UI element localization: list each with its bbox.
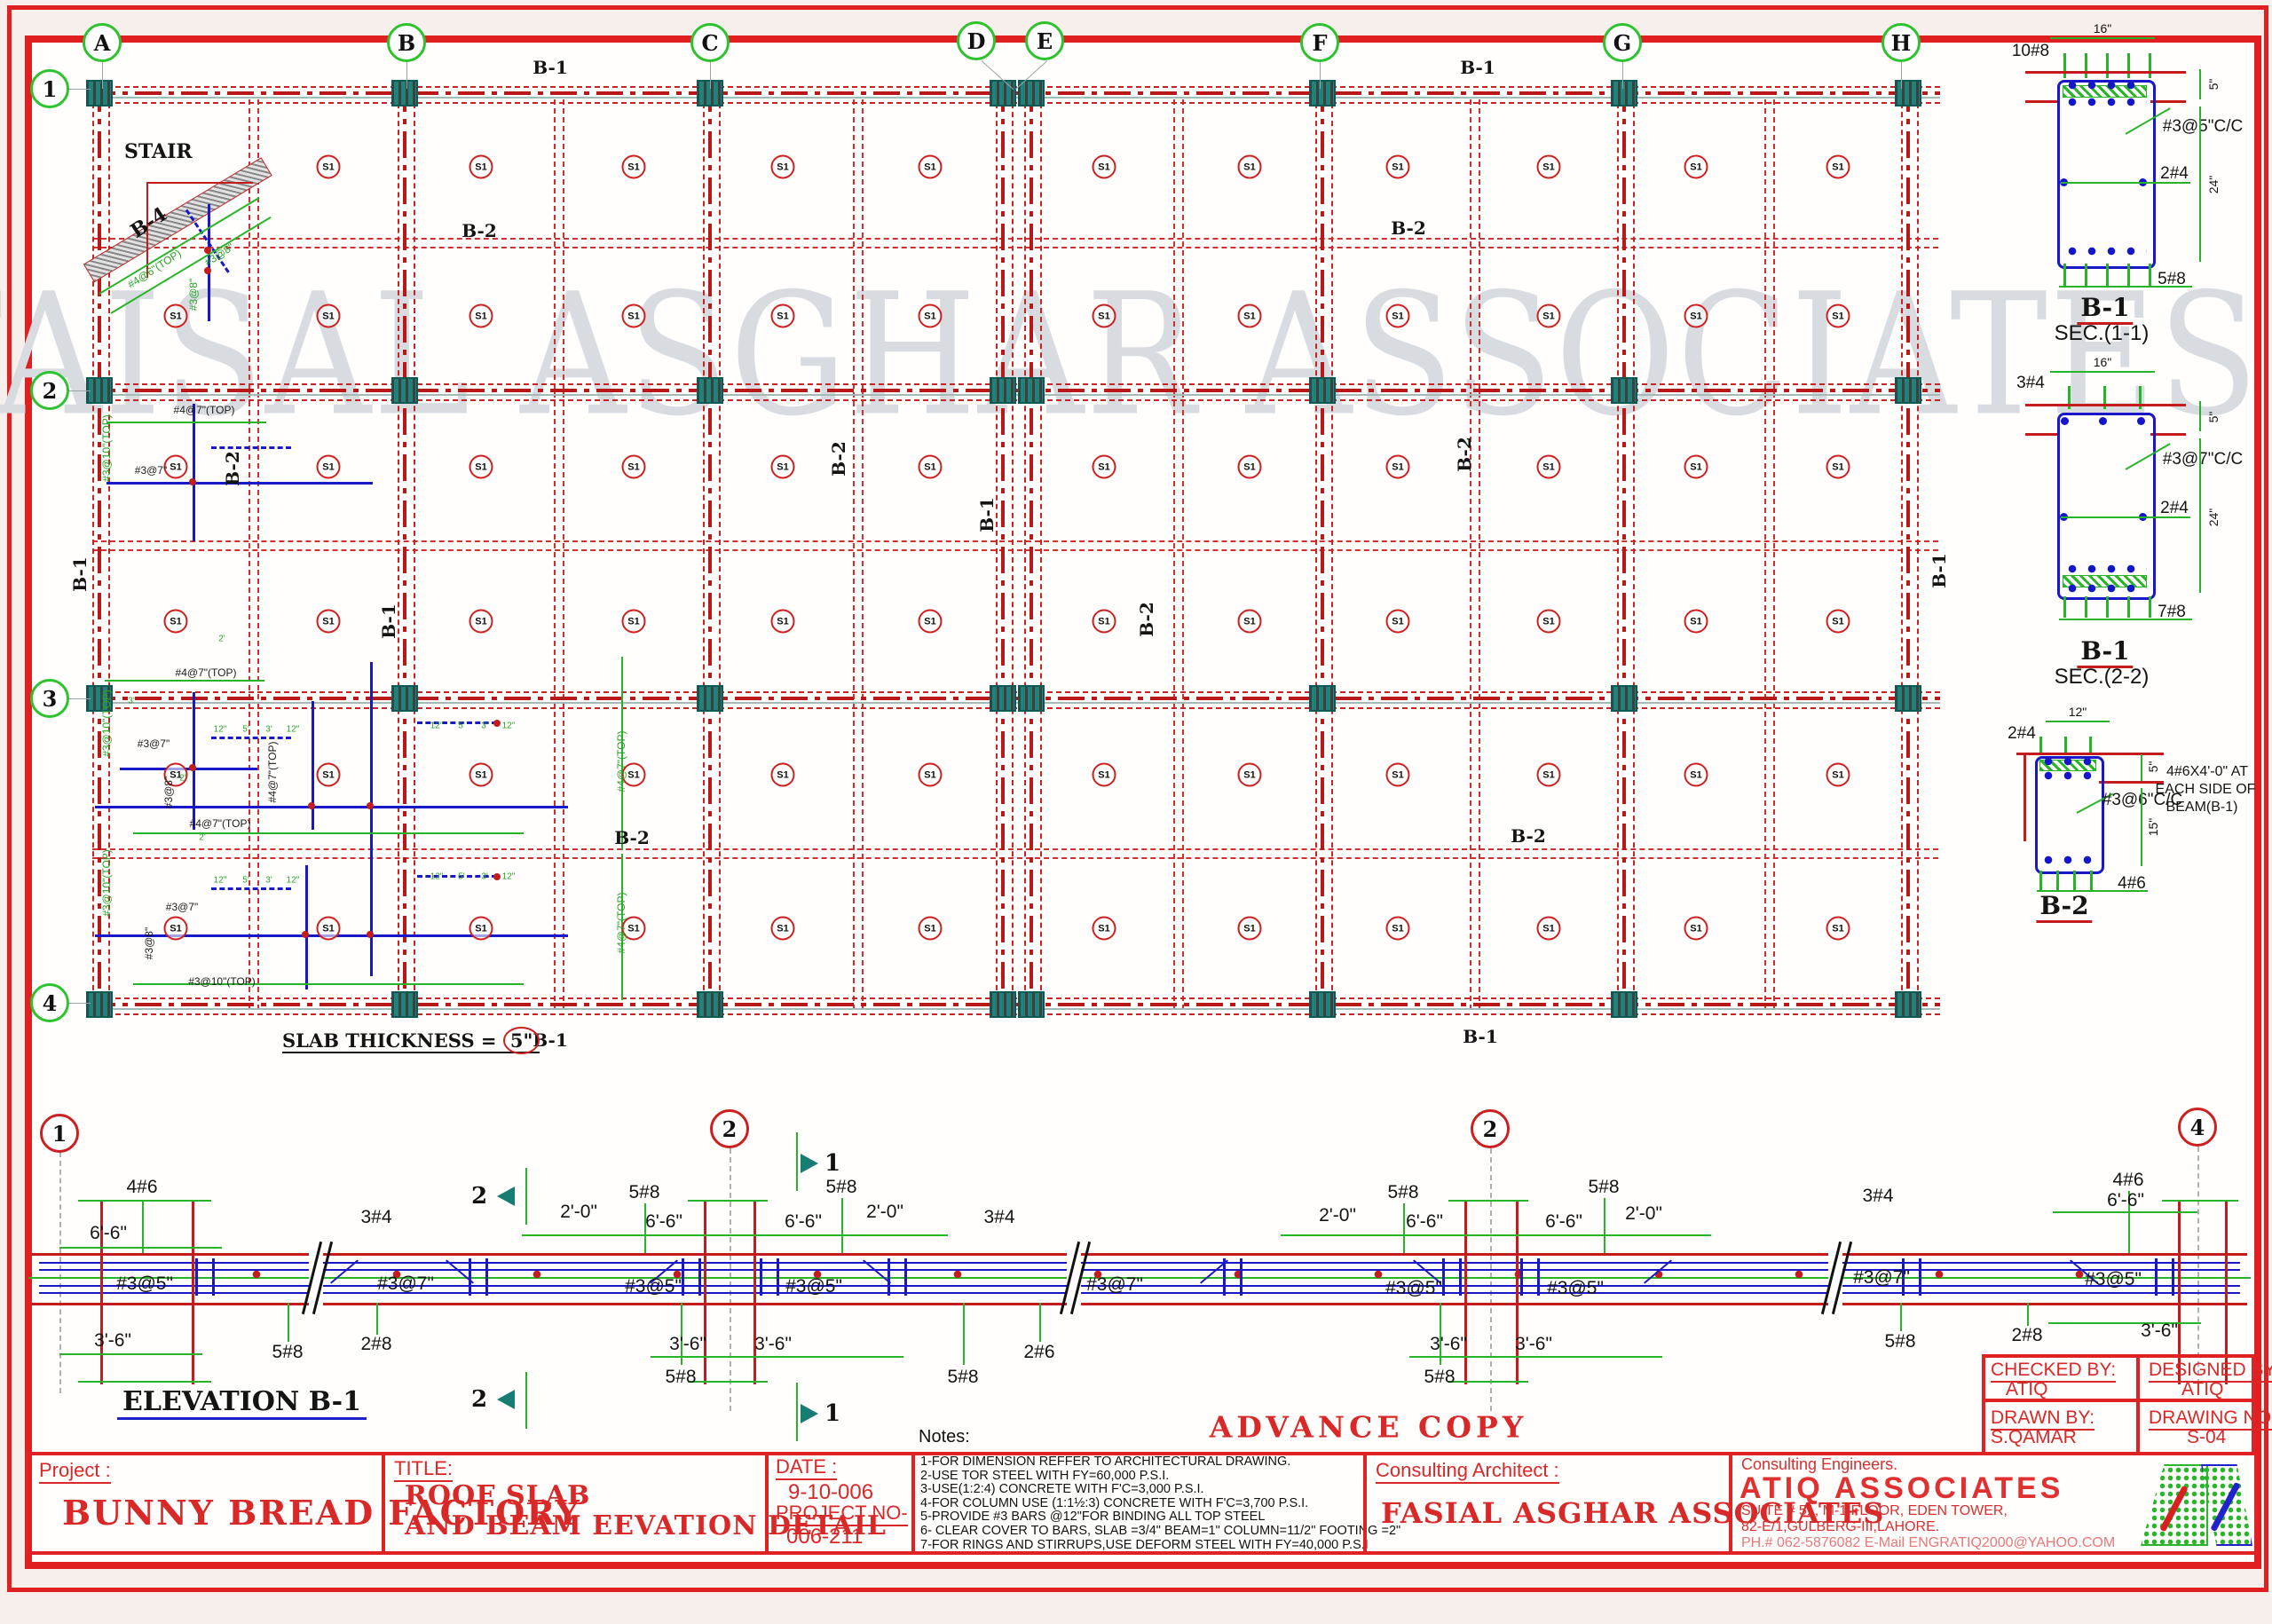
rebar-callout: #3@10"(TOP) <box>100 414 113 482</box>
slab-line <box>2150 433 2186 436</box>
project-no-value: 006-211 <box>786 1525 863 1549</box>
grid-column-bubble: B <box>387 23 426 62</box>
rebar-line <box>305 865 308 989</box>
slab-line <box>2023 753 2026 841</box>
leader-line <box>142 1200 144 1253</box>
slab-panel-label: S1 <box>170 311 181 321</box>
slab-panel-marker: S1 <box>317 917 341 941</box>
slab-panel-marker: S1 <box>919 155 943 179</box>
slab-panel-marker: S1 <box>317 155 341 179</box>
section-cut-line <box>525 1372 527 1429</box>
slab-line <box>2025 71 2186 74</box>
note-line: 7-FOR RINGS AND STIRRUPS,USE DEFORM STEE… <box>920 1539 1400 1553</box>
project-label: Project : <box>39 1459 111 1484</box>
elevation-callout: 3'-6" <box>2141 1320 2178 1342</box>
slab-panel-label: S1 <box>1392 923 1403 934</box>
slab-panel-label: S1 <box>1098 616 1109 627</box>
title-label: TITLE: <box>394 1457 453 1482</box>
slab-panel-marker: S1 <box>469 304 493 328</box>
dim-line <box>59 1353 202 1355</box>
slab-strip <box>1470 99 1480 1010</box>
slab-panel-label: S1 <box>924 311 935 321</box>
bar-point <box>367 802 374 809</box>
slab-line <box>2025 433 2057 436</box>
slab-panel-marker: S1 <box>1386 917 1410 941</box>
column <box>1895 377 1921 404</box>
slab-panel-label: S1 <box>777 923 788 934</box>
slab-panel-label: S1 <box>1243 162 1255 172</box>
column <box>1018 991 1045 1018</box>
column <box>990 377 1016 404</box>
grid-leader <box>66 390 91 391</box>
rebar-line <box>370 662 373 976</box>
dim-text: 12" <box>502 872 516 882</box>
slab-panel-marker: S1 <box>1826 917 1850 941</box>
slab-strip <box>92 238 1938 248</box>
dim-text: 12" <box>214 725 227 735</box>
slab-strip <box>554 99 564 1010</box>
dim-text: 3' <box>265 725 272 735</box>
drawing-sheet: FAISAL ASGHAR ASSOCIATES ABCDEFGH 1234 S… <box>0 0 2272 1624</box>
slab-panel-marker: S1 <box>469 763 493 787</box>
rebar-dots <box>2039 771 2095 780</box>
elevation-callout: #3@5" <box>625 1276 682 1297</box>
slab-panel-marker: S1 <box>622 155 646 179</box>
slab-thickness-text: SLAB THICKNESS = <box>282 1029 497 1052</box>
dim-line <box>105 680 264 682</box>
beam-col-H <box>1901 85 1919 1017</box>
slab-strip <box>248 99 259 1010</box>
dim-line <box>2141 788 2142 866</box>
slab-panel-label: S1 <box>1243 311 1255 321</box>
dim-line <box>651 1356 903 1358</box>
slab-panel-label: S1 <box>627 769 639 780</box>
elevation-callout: #3@7" <box>1086 1274 1143 1296</box>
slab-panel-marker: S1 <box>1826 155 1850 179</box>
slab-panel-label: S1 <box>1832 162 1843 172</box>
slab-panel-marker: S1 <box>469 455 493 479</box>
column <box>1611 991 1637 1018</box>
slab-panel-marker: S1 <box>1386 610 1410 634</box>
slab-panel-label: S1 <box>475 616 486 627</box>
grid-column-bubble: G <box>1603 23 1642 62</box>
approval-table-divider <box>2136 1354 2140 1452</box>
beam-label: B-1 <box>378 603 399 639</box>
slab-panel-label: S1 <box>1690 311 1701 321</box>
slab-panel-marker: S1 <box>919 455 943 479</box>
column <box>86 991 113 1018</box>
watermark: FAISAL ASGHAR ASSOCIATES <box>0 257 2260 453</box>
slab-panel-label: S1 <box>170 461 181 472</box>
stirrup-pair <box>887 1258 907 1296</box>
section-subtitle: SEC.(1-1) <box>2055 321 2150 346</box>
section-bottom-bars: 7#8 <box>2158 603 2186 622</box>
slab-panel-label: S1 <box>1098 311 1109 321</box>
slab-panel-marker: S1 <box>1093 304 1116 328</box>
column <box>391 685 418 712</box>
slab-panel-label: S1 <box>1392 162 1403 172</box>
section-cut-arrow <box>497 1186 515 1206</box>
leader-line <box>288 1303 289 1342</box>
slab-panel-label: S1 <box>1832 616 1843 627</box>
slab-line <box>2150 100 2186 103</box>
section-cut-line <box>525 1168 527 1225</box>
slab-panel-label: S1 <box>1243 461 1255 472</box>
beam-section-outline <box>2057 80 2156 269</box>
rebar-callout: #3@10"(TOP) <box>100 849 113 917</box>
dim-line <box>2050 371 2155 373</box>
column <box>1309 685 1336 712</box>
dim-line <box>1409 1356 1662 1358</box>
elevation-callout: #3@5" <box>1385 1278 1442 1299</box>
rebar-dots <box>2063 81 2147 90</box>
elevation-callout: 6'-6" <box>90 1223 127 1244</box>
elevation-callout: 2#6 <box>1023 1342 1054 1363</box>
elevation-callout: #3@5" <box>1547 1278 1604 1299</box>
section-cut-number: 1 <box>824 1400 840 1427</box>
elevation-callout: 2#8 <box>360 1334 391 1355</box>
slab-panel-label: S1 <box>1542 616 1554 627</box>
elevation-title: ELEVATION B-1 <box>117 1386 367 1420</box>
leader-line <box>1900 1303 1902 1331</box>
slab-panel-marker: S1 <box>1826 763 1850 787</box>
section-top-bars: 10#8 <box>2012 42 2049 61</box>
rebar-callout: #4@7"(TOP) <box>615 893 627 954</box>
elevation-callout: 4#6 <box>2112 1170 2143 1191</box>
elevation-callout: 3'-6" <box>754 1334 792 1355</box>
beam-depth-dim: 15" <box>2146 818 2160 837</box>
column <box>86 80 113 106</box>
elevation-callout: 5#8 <box>825 1177 856 1198</box>
rebar-callout: #4@7"(TOP) <box>174 404 235 416</box>
dim-line <box>133 832 524 834</box>
grid-leader <box>1901 59 1902 89</box>
dim-line <box>2199 401 2201 431</box>
rebar-callout: #3@8" <box>187 279 200 311</box>
slab-thickness-note: SLAB THICKNESS = 5" <box>282 1029 540 1053</box>
dim-text: 3' <box>481 872 487 882</box>
leader-line <box>1604 1198 1605 1253</box>
dim-line <box>2199 438 2201 593</box>
slab-panel-marker: S1 <box>317 610 341 634</box>
slab-panel-marker: S1 <box>317 304 341 328</box>
column <box>1018 685 1045 712</box>
bar-point <box>189 478 196 485</box>
slab-panel-marker: S1 <box>919 304 943 328</box>
slab-panel-label: S1 <box>475 311 486 321</box>
slab-panel-marker: S1 <box>1684 917 1708 941</box>
slab-strip <box>853 99 864 1010</box>
dim-text: 2' <box>199 833 205 843</box>
slab-panel-marker: S1 <box>1537 455 1561 479</box>
column <box>1309 80 1336 106</box>
section-cut-arrow <box>801 1404 818 1423</box>
slab-panel-marker: S1 <box>622 304 646 328</box>
engineers-address-1: SUITE # 51, M-1 FLOOR, EDEN TOWER, <box>1741 1503 2008 1519</box>
slab-panel-label: S1 <box>1392 461 1403 472</box>
beam-col-E <box>1024 85 1042 1017</box>
bar-point <box>493 720 501 727</box>
slab-panel-label: S1 <box>475 461 486 472</box>
bar-point <box>308 802 315 809</box>
beam-label: B-1 <box>1929 553 1950 588</box>
grid-column-bubble: D <box>957 21 996 60</box>
slab-panel-marker: S1 <box>1684 763 1708 787</box>
slab-panel-label: S1 <box>1392 769 1403 780</box>
slab-panel-label: S1 <box>1392 616 1403 627</box>
beam-label: B-2 <box>461 220 497 241</box>
elevation-callout: 3'-6" <box>1515 1334 1552 1355</box>
slab-panel-label: S1 <box>1542 923 1554 934</box>
slab-panel-marker: S1 <box>1537 155 1561 179</box>
elevation-callout: 6'-6" <box>1406 1211 1443 1233</box>
slab-panel-marker: S1 <box>1238 455 1262 479</box>
column-tie <box>2162 1200 2238 1202</box>
slab-line <box>2099 781 2164 784</box>
section-mid-bars: 2#4 <box>2160 499 2189 518</box>
elevation-callout: 6'-6" <box>2107 1190 2144 1211</box>
slab-depth-dim: 5" <box>2206 79 2221 91</box>
slab-line <box>2025 100 2057 103</box>
column-tie <box>1448 1200 1528 1202</box>
slab-panel-label: S1 <box>1542 769 1554 780</box>
dim-text: 2' <box>218 635 225 644</box>
grid-column-bubble: F <box>1300 23 1339 62</box>
dim-text: 3' <box>128 697 134 706</box>
architect-label: Consulting Architect : <box>1376 1459 1559 1484</box>
rebar-dots <box>2063 247 2147 256</box>
grid-column-bubble: C <box>690 23 730 62</box>
dim-line <box>2050 37 2155 39</box>
slab-panel-label: S1 <box>924 461 935 472</box>
slab-thickness-value: 5" <box>503 1027 540 1054</box>
slab-strip <box>92 540 1938 551</box>
stair-line <box>146 182 253 184</box>
rebar-callout: #3@10"(TOP) <box>188 975 256 988</box>
slab-panel-marker: S1 <box>469 155 493 179</box>
slab-panel-marker: S1 <box>317 455 341 479</box>
column <box>1611 377 1637 404</box>
slab-panel-marker: S1 <box>1238 917 1262 941</box>
slab-panel-marker: S1 <box>1093 763 1116 787</box>
elevation-callout: 2'-0" <box>560 1202 597 1223</box>
slab-panel-marker: S1 <box>1537 304 1561 328</box>
slab-panel-label: S1 <box>322 616 334 627</box>
stirrup-pair <box>2155 1258 2174 1296</box>
beam-col-C <box>703 85 721 1017</box>
column <box>1611 80 1637 106</box>
slab-panel-label: S1 <box>924 769 935 780</box>
slab-panel-marker: S1 <box>1238 304 1262 328</box>
rebar-callout: #4@7"(TOP) <box>190 817 251 830</box>
note-line: 6- CLEAR COVER TO BARS, SLAB =3/4" BEAM=… <box>920 1525 1400 1539</box>
section-cut-number: 2 <box>471 1386 487 1413</box>
grid-row-bubble: 1 <box>30 69 69 108</box>
section-width-dim: 16" <box>2094 21 2112 35</box>
notes-heading: Notes: <box>919 1427 970 1447</box>
beam-label: B-2 <box>614 827 650 848</box>
section-mid-bars: 2#4 <box>2160 164 2189 184</box>
stirrup-pair <box>469 1258 488 1296</box>
section-cut-arrow <box>497 1390 515 1409</box>
section-title: B-2 <box>2036 891 2092 923</box>
grid-leader <box>66 89 91 90</box>
grid-row-bubble: 4 <box>30 983 69 1022</box>
column <box>1895 80 1921 106</box>
slab-panel-label: S1 <box>777 311 788 321</box>
beam-bottom-line <box>32 1303 2247 1305</box>
column <box>697 685 723 712</box>
slab-panel-marker: S1 <box>1684 155 1708 179</box>
grid-leader <box>406 59 407 89</box>
section-cut-arrow <box>801 1154 818 1173</box>
rebar-dots <box>2039 757 2095 766</box>
column <box>990 991 1016 1018</box>
leader-line <box>1403 1203 1405 1253</box>
section-bottom-bars: 4#6 <box>2118 874 2146 894</box>
drawing-title-line1: ROOF SLAB <box>405 1480 590 1511</box>
dim-line <box>2046 721 2110 722</box>
slab-panel-marker: S1 <box>1826 304 1850 328</box>
beam-depth-dim: 24" <box>2206 508 2221 527</box>
column <box>1895 991 1921 1018</box>
stirrup-pair <box>195 1258 215 1296</box>
note-line: 4-FOR COLUMN USE (1:1½:3) CONCRETE WITH … <box>920 1497 1400 1511</box>
slab-panel-label: S1 <box>1243 769 1255 780</box>
column <box>697 377 723 404</box>
slab-panel-label: S1 <box>627 616 639 627</box>
section-stirrups: #3@5"C/C <box>2163 117 2243 137</box>
slab-panel-marker: S1 <box>771 610 795 634</box>
elevation-callout: 5#8 <box>947 1367 978 1388</box>
column <box>990 685 1016 712</box>
leader-line <box>1039 1303 1041 1342</box>
elevation-callout: #3@5" <box>785 1276 842 1297</box>
elevation-callout: 2'-0" <box>1319 1205 1356 1226</box>
beam-label: B-2 <box>1454 437 1475 472</box>
rebar-callout: #3@10"(TOP) <box>100 690 113 757</box>
slab-panel-marker: S1 <box>1537 763 1561 787</box>
elevation-callout: 3#4 <box>1862 1186 1893 1207</box>
dim-line <box>1281 1234 1711 1236</box>
slab-strip <box>1764 99 1775 1010</box>
slab-depth-dim: 5" <box>2206 412 2221 423</box>
elevation-callout: 2'-0" <box>866 1202 903 1223</box>
slab-panel-marker: S1 <box>919 763 943 787</box>
dim-text: 5' <box>242 725 248 735</box>
note-line: 1-FOR DIMENSION REFFER TO ARCHITECTURAL … <box>920 1455 1400 1470</box>
rebar-callout: #3@7" <box>135 464 167 477</box>
slab-panel-marker: S1 <box>622 455 646 479</box>
slab-panel-label: S1 <box>1098 769 1109 780</box>
dim-line <box>2199 106 2201 262</box>
slab-panel-label: S1 <box>1098 923 1109 934</box>
engineers-phone: PH.# 062-5876082 E-Mail ENGRATIQ2000@YAH… <box>1741 1535 2115 1551</box>
slab-panel-label: S1 <box>1542 311 1554 321</box>
slab-panel-label: S1 <box>322 311 334 321</box>
bar-ticks <box>2063 596 2154 618</box>
slab-panel-label: S1 <box>475 923 486 934</box>
grid-leader <box>710 59 711 89</box>
rebar-line-dashed <box>211 446 291 449</box>
slab-panel-label: S1 <box>1690 162 1701 172</box>
slab-panel-marker: S1 <box>1684 455 1708 479</box>
slab-panel-label: S1 <box>170 923 181 934</box>
slab-panel-marker: S1 <box>164 455 188 479</box>
slab-panel-marker: S1 <box>771 304 795 328</box>
slab-panel-marker: S1 <box>1238 155 1262 179</box>
stirrup-pair <box>682 1258 701 1296</box>
bar-point <box>189 764 196 771</box>
section-cut-line <box>796 1383 798 1441</box>
slab-panel-label: S1 <box>1690 461 1701 472</box>
leader-line <box>963 1303 965 1365</box>
dim-text: 5' <box>242 876 248 886</box>
section-note-3: BEAM(B-1) <box>2166 800 2238 816</box>
column <box>1309 991 1336 1018</box>
leader-line <box>2027 1303 2029 1326</box>
leader-line <box>376 1303 378 1335</box>
slab-panel-marker: S1 <box>1537 610 1561 634</box>
beam-col-B <box>398 85 415 1017</box>
elevation-callout: 5#8 <box>272 1342 303 1363</box>
slab-panel-label: S1 <box>322 769 334 780</box>
slab-panel-label: S1 <box>1832 923 1843 934</box>
slab-panel-marker: S1 <box>1386 304 1410 328</box>
elevation-grid-bubble: 2 <box>710 1109 749 1148</box>
grid-row-bubble: 2 <box>30 371 69 410</box>
elevation-callout: #3@5" <box>116 1273 173 1295</box>
dim-text: 5' <box>458 721 464 731</box>
slab-panel-marker: S1 <box>164 304 188 328</box>
slab-panel-label: S1 <box>627 162 639 172</box>
grid-row-bubble: 3 <box>30 679 69 718</box>
dim-line <box>2053 1211 2197 1213</box>
section-cut-line <box>796 1132 798 1191</box>
grid-column-bubble: A <box>83 23 122 62</box>
beam-label: B-1 <box>1460 57 1495 78</box>
slab-panel-marker: S1 <box>1386 155 1410 179</box>
beam-top-line <box>32 1253 2247 1256</box>
drawing-no-value: S-04 <box>2187 1427 2226 1448</box>
slab-panel-label: S1 <box>627 923 639 934</box>
slab-strip <box>1173 99 1184 1010</box>
slab-panel-marker: S1 <box>1826 610 1850 634</box>
slab-panel-label: S1 <box>1832 769 1843 780</box>
column <box>1018 377 1045 404</box>
elevation-grid-bubble: 2 <box>1471 1109 1510 1148</box>
slab-panel-marker: S1 <box>771 763 795 787</box>
beam-col-F <box>1315 85 1333 1017</box>
engineers-address-2: 82-E/1,GULBERG-III,LAHORE. <box>1741 1519 1939 1535</box>
elevation-callout: 5#8 <box>1387 1182 1418 1203</box>
rebar-callout: #3@8" <box>143 927 155 959</box>
elevation-grid-bubble: 4 <box>2178 1108 2217 1147</box>
elevation-callout: 3'-6" <box>1430 1334 1467 1355</box>
bar-ticks <box>2063 53 2154 78</box>
rebar-callout: #4@7"(TOP) <box>266 742 279 803</box>
slab-panel-label: S1 <box>924 923 935 934</box>
slab-panel-marker: S1 <box>1826 455 1850 479</box>
column-tie <box>688 1381 768 1383</box>
slab-panel-label: S1 <box>777 162 788 172</box>
slab-panel-label: S1 <box>475 769 486 780</box>
slab-panel-label: S1 <box>1542 162 1554 172</box>
elevation-callout: 3'-6" <box>94 1330 131 1352</box>
slab-line <box>2025 404 2186 406</box>
slab-panel-label: S1 <box>1832 461 1843 472</box>
dim-text: 12" <box>287 876 300 886</box>
